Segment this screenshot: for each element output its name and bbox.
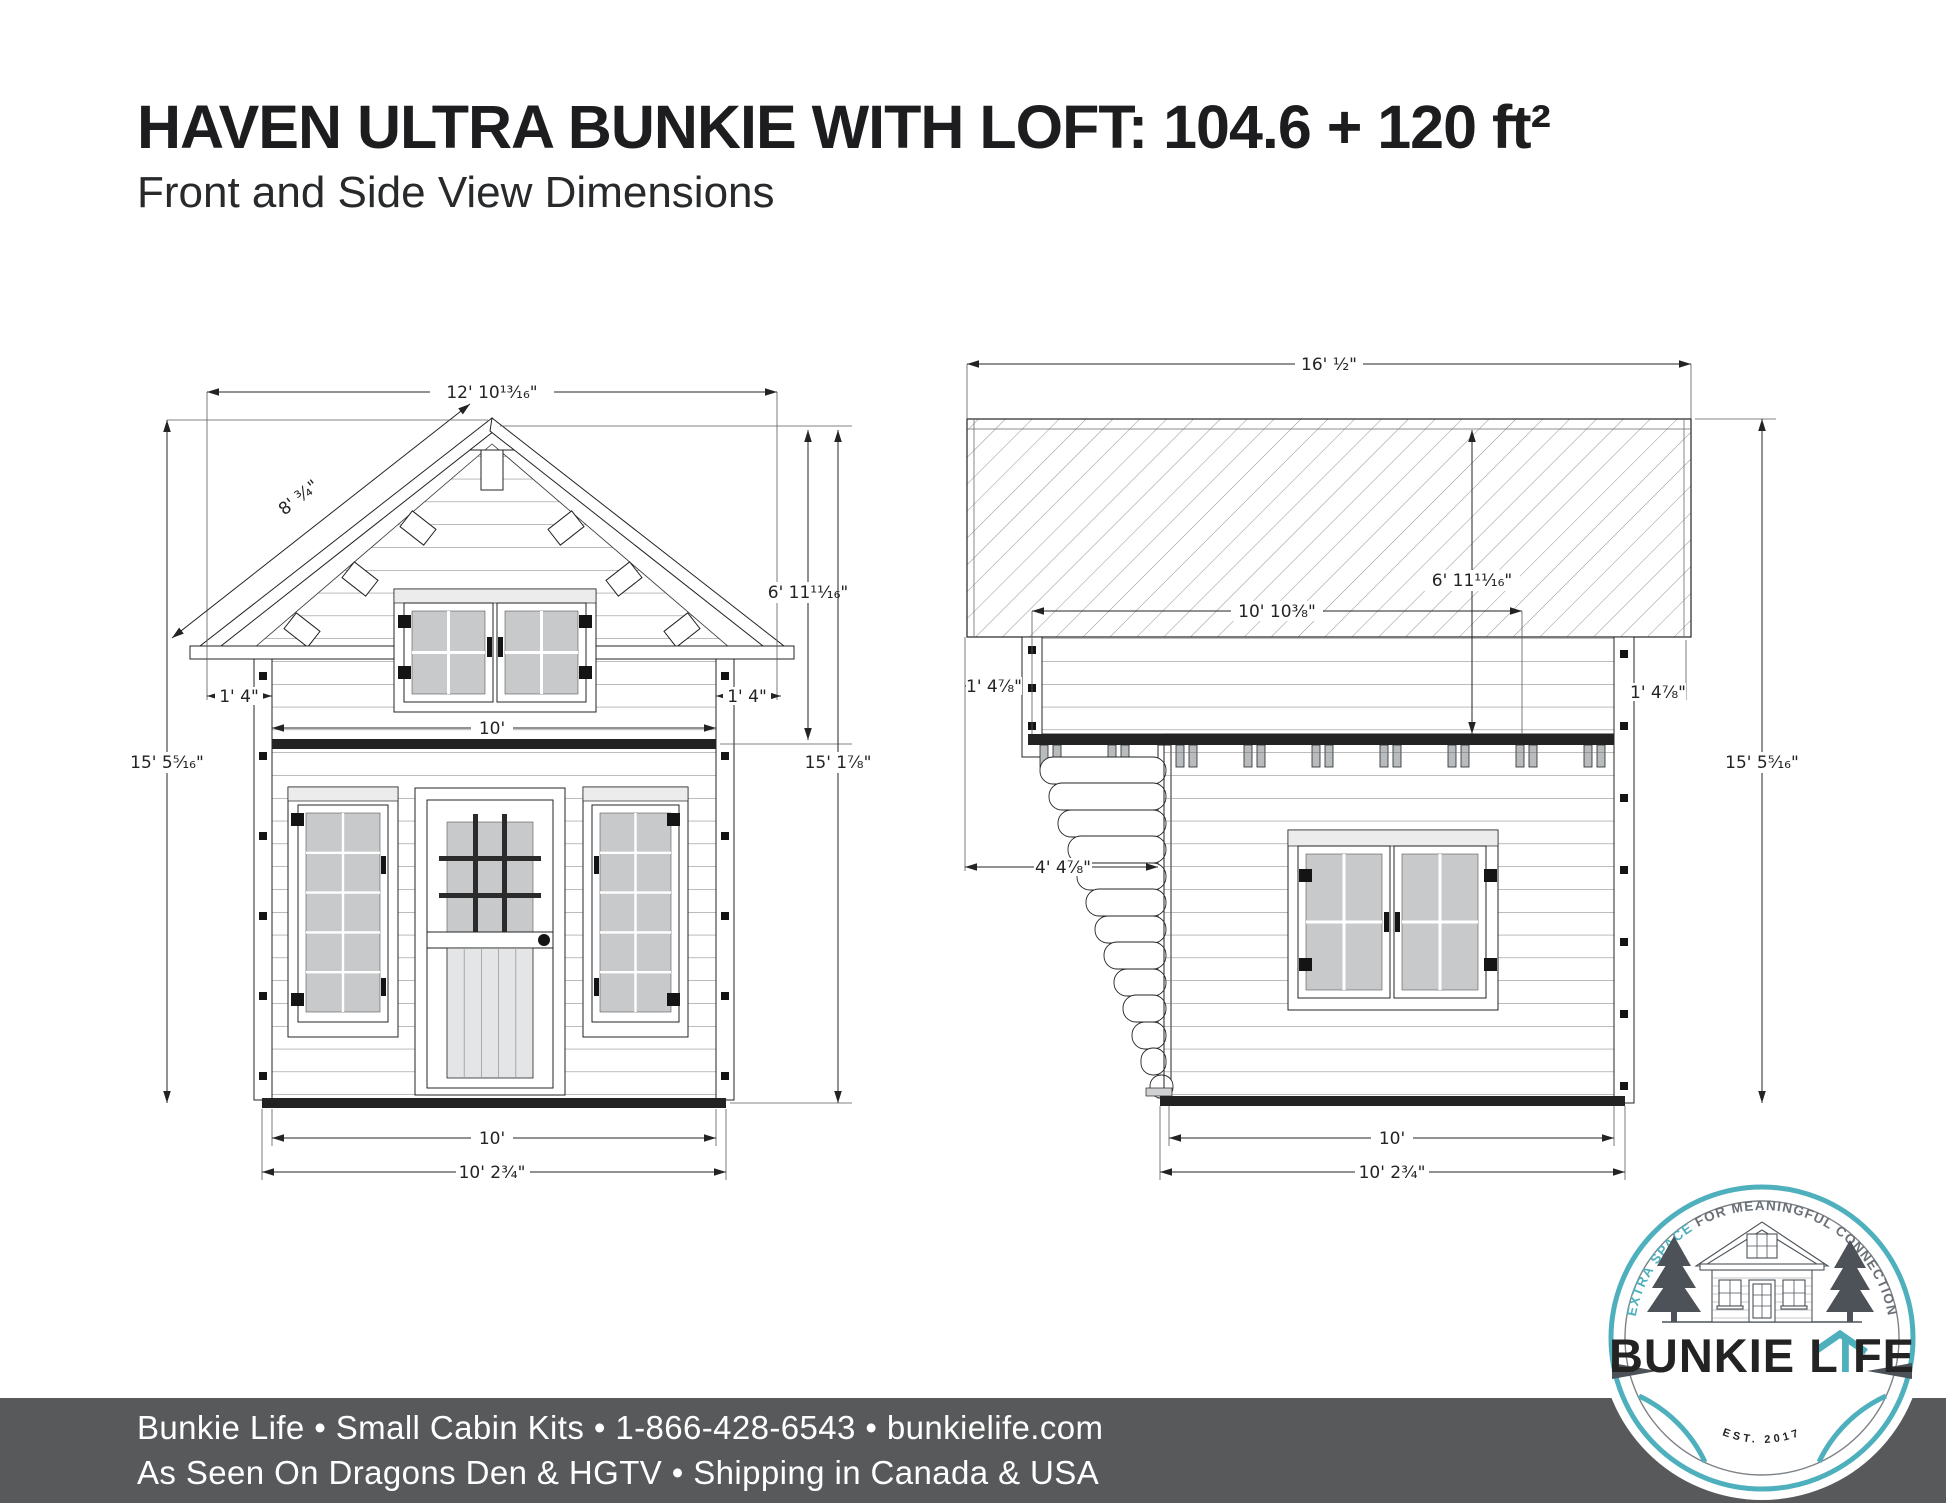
dim-side-total-height: 15' 5⁵⁄₁₆" [1725, 753, 1799, 773]
dim-side-overhang-left: 1' 4⁷⁄₈" [966, 677, 1022, 697]
front-log-ends-left [254, 659, 272, 1100]
dim-front-base-width: 10' [479, 1129, 505, 1149]
dim-front-overall-width: 10' 2³⁄₄" [459, 1163, 526, 1183]
side-window [1288, 830, 1498, 1010]
side-view-drawing: 16' ¹⁄₂" 15' 5⁵⁄₁₆" 6' 11¹¹⁄₁₆" 10' 10³⁄… [965, 355, 1809, 1183]
side-porch-step-logs [1040, 757, 1173, 1098]
logo-wordmark: BUNKIE LIFE [1609, 1329, 1915, 1382]
dim-front-overhang-right: 1' 4" [727, 687, 767, 707]
header: HAVEN ULTRA BUNKIE WITH LOFT: 104.6 + 12… [137, 92, 1550, 218]
page-title: HAVEN ULTRA BUNKIE WITH LOFT: 104.6 + 12… [137, 92, 1550, 162]
drawings-canvas: 12' 10¹³⁄₁₆" 8' ³⁄₄" 15' 5⁵⁄₁₆" 6' 11¹¹⁄… [0, 0, 1946, 1503]
front-log-ends-right [716, 659, 734, 1100]
dim-side-loft-floor-length: 10' 10³⁄₈" [1238, 602, 1316, 622]
front-base-sill [262, 1098, 726, 1108]
page: HAVEN ULTRA BUNKIE WITH LOFT: 104.6 + 12… [0, 0, 1946, 1503]
dim-front-slope-length: 8' ³⁄₄" [275, 476, 323, 520]
dim-side-overall-depth: 10' 2³⁄₄" [1359, 1163, 1426, 1183]
dim-front-loft-height: 6' 11¹¹⁄₁₆" [768, 583, 848, 603]
front-window-left [288, 787, 398, 1037]
front-loft-window [394, 589, 596, 712]
dim-side-overhang-right: 1' 4⁷⁄₈" [1630, 683, 1686, 703]
dim-front-wall-height: 15' 1⁷⁄₈" [805, 753, 872, 773]
dim-front-overhang-left: 1' 4" [219, 687, 259, 707]
side-roof [967, 419, 1691, 637]
page-subtitle: Front and Side View Dimensions [137, 168, 1550, 218]
side-base-sill [1160, 1096, 1625, 1106]
dim-front-loft-floor-width: 10' [479, 719, 505, 739]
dim-front-total-height: 15' 5⁵⁄₁₆" [130, 753, 204, 773]
side-loft-wall [1042, 637, 1614, 734]
front-door [415, 788, 565, 1095]
door-knob [538, 934, 550, 946]
dim-side-porch-depth: 4' 4⁷⁄₈" [1035, 858, 1091, 878]
dim-side-loft-height: 6' 11¹¹⁄₁₆" [1432, 571, 1512, 591]
bunkie-life-logo: EXTRA SPACE FOR MEANINGFUL CONNECTION [1600, 1176, 1924, 1500]
dim-side-roof-length: 16' ¹⁄₂" [1301, 355, 1357, 375]
front-loft-floor-line [272, 739, 716, 749]
front-window-right [583, 787, 688, 1037]
dim-side-base-depth: 10' [1379, 1129, 1405, 1149]
dim-front-roof-width: 12' 10¹³⁄₁₆" [446, 383, 537, 403]
front-view-drawing: 12' 10¹³⁄₁₆" 8' ³⁄₄" 15' 5⁵⁄₁₆" 6' 11¹¹⁄… [120, 381, 882, 1183]
